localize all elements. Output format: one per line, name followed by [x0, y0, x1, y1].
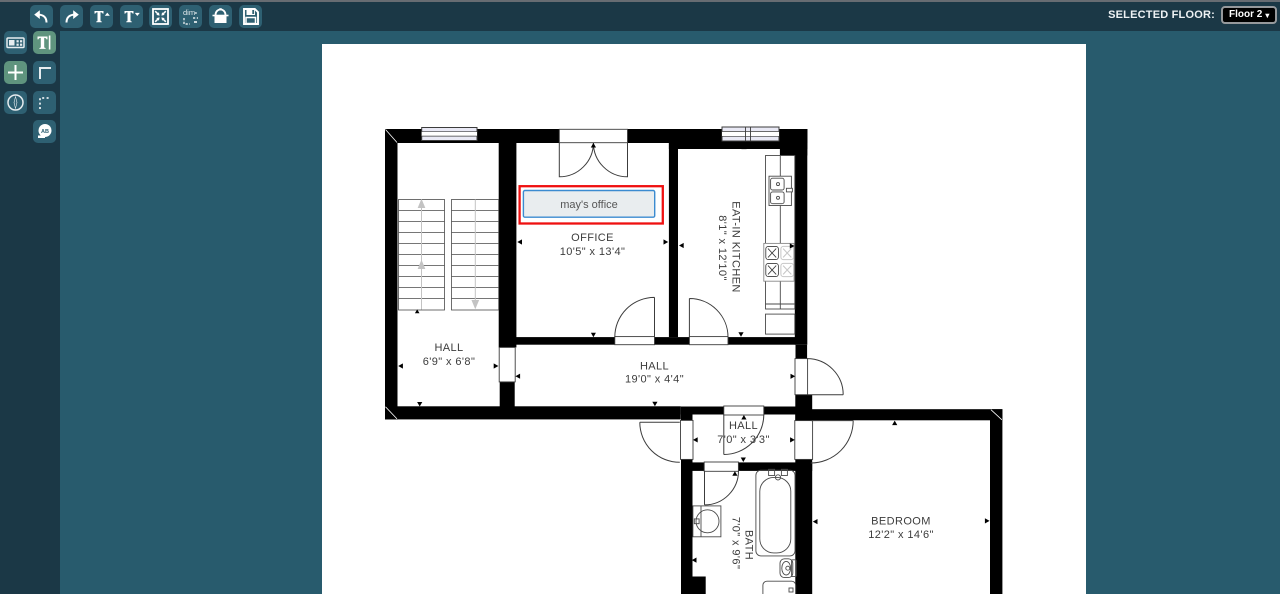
- svg-text:HALL: HALL: [434, 342, 463, 354]
- svg-text:10'5" x 13'4": 10'5" x 13'4": [560, 246, 626, 258]
- svg-text:BEDROOM: BEDROOM: [871, 515, 931, 527]
- svg-text:BATH: BATH: [743, 530, 755, 560]
- svg-text:may's office: may's office: [560, 199, 618, 211]
- svg-text:EAT-IN KITCHEN: EAT-IN KITCHEN: [730, 201, 742, 293]
- svg-text:dim: dim: [183, 8, 195, 17]
- svg-text:HALL: HALL: [640, 361, 669, 373]
- svg-text:12'2" x 14'6": 12'2" x 14'6": [868, 529, 934, 541]
- svg-text:HALL: HALL: [729, 420, 758, 432]
- svg-text:OFFICE: OFFICE: [571, 232, 614, 244]
- svg-text:7'0" x 3'3": 7'0" x 3'3": [717, 434, 770, 446]
- svg-text:19'0" x 4'4": 19'0" x 4'4": [625, 374, 684, 386]
- svg-text:AB: AB: [41, 129, 49, 135]
- svg-text:8'1" x 12'10": 8'1" x 12'10": [716, 215, 728, 281]
- svg-text:6'9" x 6'8": 6'9" x 6'8": [423, 356, 476, 368]
- svg-text:7'0" x 9'6": 7'0" x 9'6": [730, 517, 742, 570]
